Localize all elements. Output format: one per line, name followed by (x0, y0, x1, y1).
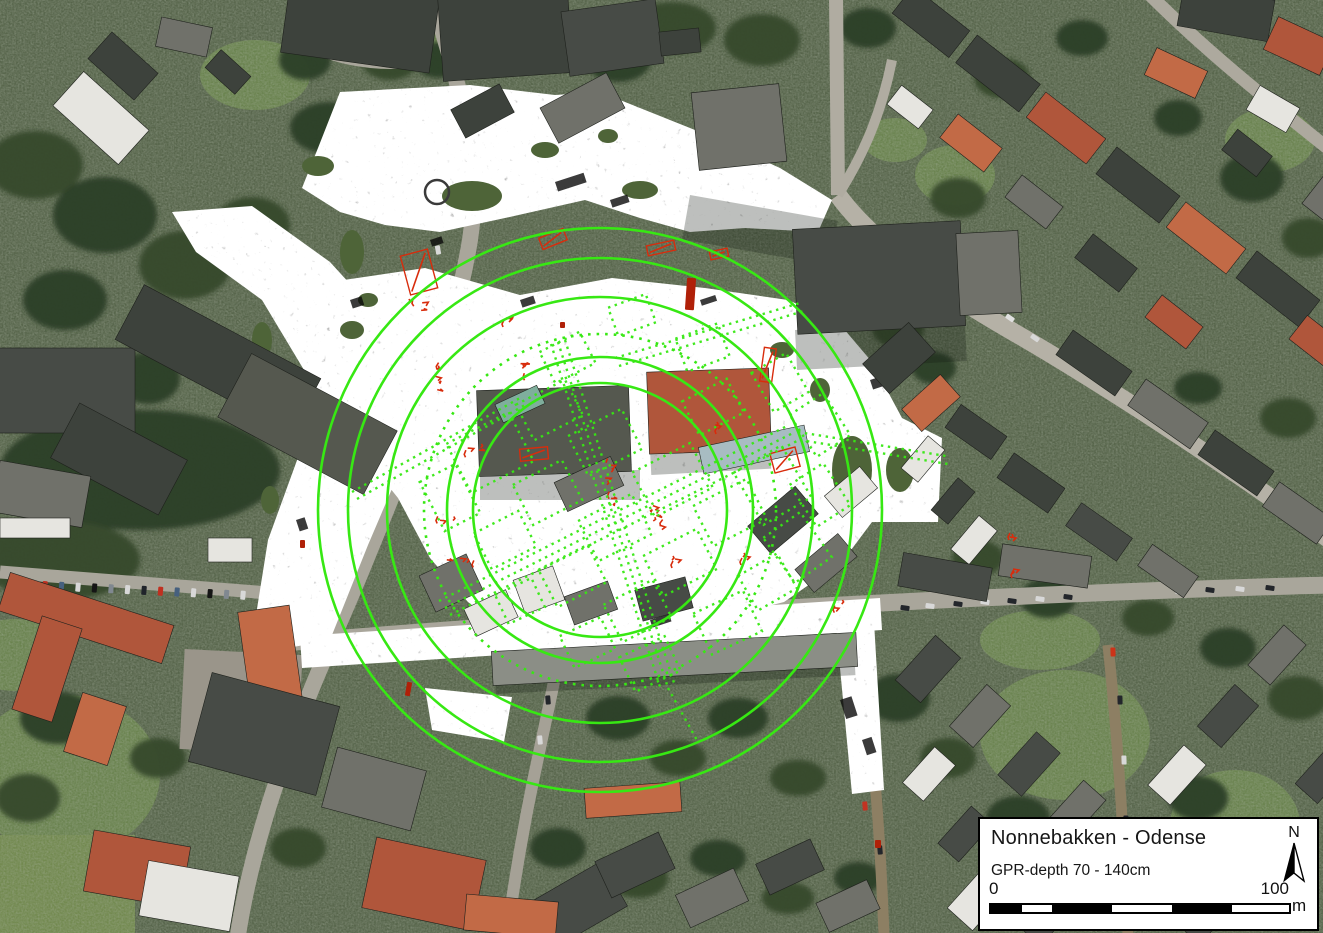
scale-bar-segment (1232, 905, 1289, 912)
north-arrow-icon: N (1279, 822, 1309, 886)
scale-bar-segment (1112, 905, 1172, 912)
scale-bar-segment (991, 905, 1022, 912)
scale-start-label: 0 (989, 879, 998, 899)
legend-subtitle: GPR-depth 70 - 140cm (991, 862, 1150, 880)
scale-bar-segment (1172, 905, 1232, 912)
north-label: N (1288, 824, 1300, 841)
legend-box: Nonnebakken - Odense GPR-depth 70 - 140c… (978, 817, 1319, 931)
map-figure: Nonnebakken - Odense GPR-depth 70 - 140c… (0, 0, 1323, 933)
scale-bar-segment (1022, 905, 1052, 912)
scale-unit-label: m (1292, 896, 1306, 916)
scale-bar-segment (1052, 905, 1112, 912)
scale-bar (989, 903, 1291, 914)
aerial-map (0, 0, 1323, 933)
legend-title: Nonnebakken - Odense (991, 827, 1206, 850)
